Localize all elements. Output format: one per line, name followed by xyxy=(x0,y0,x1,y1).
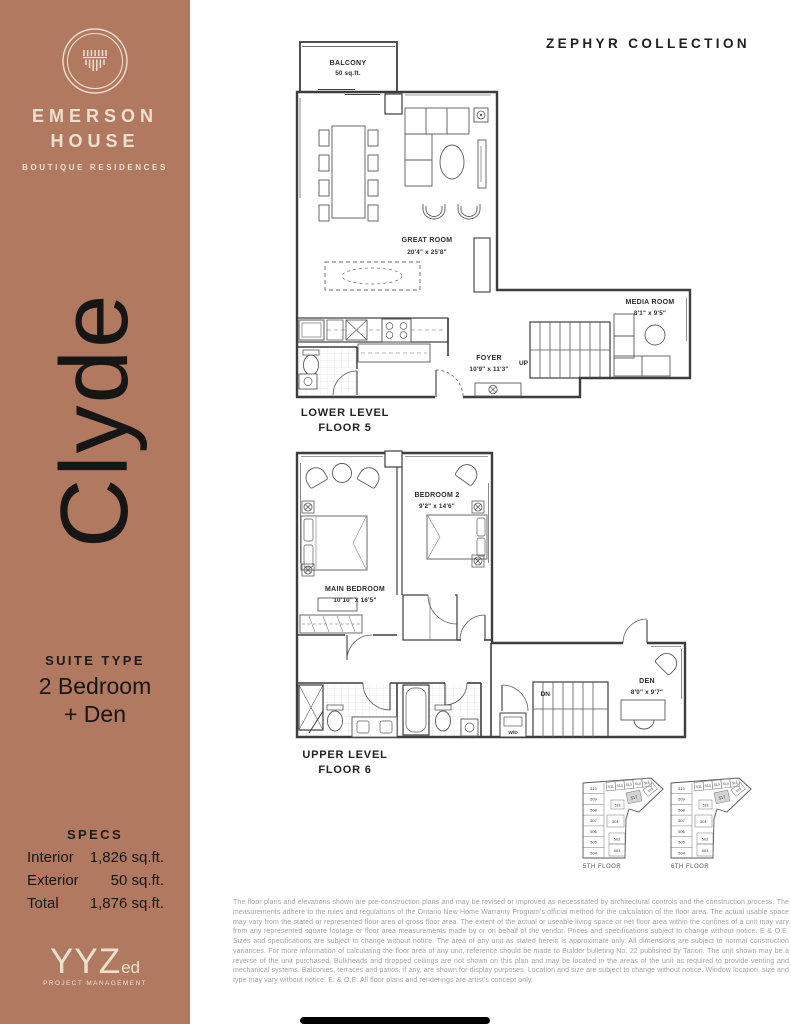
powder-room xyxy=(297,347,357,396)
shower xyxy=(299,685,323,733)
main-bedroom-door xyxy=(297,635,397,660)
unit-cell: 507 xyxy=(678,818,685,823)
unit-cell: 511 xyxy=(608,785,614,790)
unit-cell: 511 xyxy=(696,785,702,790)
legal-disclaimer: The floor plans and elevations shown are… xyxy=(233,898,789,986)
media-room-label: MEDIA ROOM xyxy=(625,299,674,306)
unit-cell: 501 xyxy=(700,819,707,824)
light-fixture-icon xyxy=(489,385,497,393)
spec-value: 50 sq.ft. xyxy=(111,872,164,889)
key-plan-6th-floor: 510 509 508 507 506 505 504 511 512 513 … xyxy=(669,776,755,862)
unit-cell: 518 xyxy=(703,803,709,807)
pantry-cabinet xyxy=(474,238,490,292)
lower-plan-caption: LOWER LEVEL FLOOR 5 xyxy=(290,406,400,435)
toilet xyxy=(327,705,343,731)
stairs-up: UP xyxy=(519,322,610,378)
upper-caption-line2: FLOOR 6 xyxy=(290,763,400,778)
unit-cell: 514 xyxy=(635,782,641,787)
specs-heading: SPECS xyxy=(0,827,190,842)
foyer-label: FOYER xyxy=(476,355,502,362)
unit-cell: 506 xyxy=(590,829,597,834)
unit-cell: 501 xyxy=(612,819,619,824)
unit-cell: 503 xyxy=(614,848,621,853)
unit-cell: 506 xyxy=(678,829,685,834)
kitchen-island xyxy=(325,262,420,290)
page-footer-bar xyxy=(300,1017,490,1024)
coffee-table xyxy=(440,145,464,179)
unit-cell: 513 xyxy=(714,783,720,788)
lower-level-floor-plan: BALCONY 50 sq.ft. xyxy=(285,38,695,408)
spec-value: 1,876 sq.ft. xyxy=(90,895,164,912)
bed2 xyxy=(427,515,487,559)
column xyxy=(385,94,402,114)
spec-row-interior: Interior 1,826 sq.ft. xyxy=(27,849,164,866)
unit-cell: 503 xyxy=(702,848,709,853)
brand-name-line1: EMERSON xyxy=(0,106,190,127)
upper-level-floor-plan: BEDROOM 2 9'2" x 14'6" MAIN BEDROOM 10'1… xyxy=(285,443,695,753)
bedroom-divider-wall xyxy=(397,467,402,595)
unit-cell: 518 xyxy=(615,803,621,807)
spec-label: Total xyxy=(27,895,59,912)
den-desk xyxy=(621,700,665,729)
unit-cell: 514 xyxy=(723,782,729,787)
foyer-size-label: 10'9" x 11'3" xyxy=(469,366,508,373)
suite-type-line2: + Den xyxy=(0,700,190,728)
den-chair xyxy=(655,649,681,675)
dining-table xyxy=(319,126,378,221)
column xyxy=(385,451,402,467)
unit-cell: 508 xyxy=(590,807,597,812)
balcony: BALCONY 50 sq.ft. xyxy=(300,42,397,92)
spec-value: 1,826 sq.ft. xyxy=(90,849,164,866)
media-room-size-label: 8'1" x 9'5" xyxy=(634,310,666,317)
yyzed-logo-main: YYZ xyxy=(50,942,121,981)
suite-type-line1: 2 Bedroom xyxy=(0,672,190,700)
unit-cell: 510 xyxy=(590,786,597,791)
stairs-up-label: UP xyxy=(519,360,529,367)
stove xyxy=(382,319,411,342)
unit-cell: 515 xyxy=(732,781,738,786)
bedroom2-door xyxy=(457,615,492,640)
suite-type-value: 2 Bedroom + Den xyxy=(0,672,190,728)
unit-cell: 512 xyxy=(705,784,711,789)
brochure-page: EMERSON HOUSE BOUTIQUE RESIDENCES Clyde … xyxy=(0,0,791,1024)
upper-caption-line1: UPPER LEVEL xyxy=(290,748,400,763)
key-plan-5th-floor: 510 509 508 507 506 505 504 511 512 513 … xyxy=(581,776,667,862)
unit-cell: 504 xyxy=(590,850,597,855)
unit-cell: 504 xyxy=(678,850,685,855)
stairs-down: DN xyxy=(533,682,608,737)
stairs-down-label: DN xyxy=(541,691,551,698)
entry-door xyxy=(435,370,463,401)
unit-cell: 509 xyxy=(590,797,597,802)
den-label: DEN xyxy=(639,678,655,685)
media-sofa xyxy=(614,314,670,376)
yyzed-logo-suffix: ed xyxy=(121,958,140,977)
spec-row-exterior: Exterior 50 sq.ft. xyxy=(27,872,164,889)
media-table xyxy=(645,325,665,345)
brand-tagline: BOUTIQUE RESIDENCES xyxy=(0,163,190,172)
suite-name: Clyde xyxy=(8,258,182,582)
foyer-closet xyxy=(475,383,521,396)
den-size-label: 8'0" x 9'7" xyxy=(631,689,663,696)
unit-cell: 507 xyxy=(590,818,597,823)
light-fixture-icons xyxy=(302,501,484,576)
main-bed xyxy=(301,516,367,570)
balcony-size-label: 50 sq.ft. xyxy=(335,70,361,77)
sidebar: EMERSON HOUSE BOUTIQUE RESIDENCES Clyde … xyxy=(0,0,190,1024)
kitchen-sink xyxy=(346,320,367,340)
key-plan-5th-caption: 5TH FLOOR xyxy=(583,864,621,870)
bedroom2-closet xyxy=(403,593,457,640)
great-room-size-label: 20'4" x 25'8" xyxy=(407,249,447,256)
tv-console xyxy=(478,140,486,188)
unit-cell: 505 xyxy=(678,840,685,845)
lower-caption-line1: LOWER LEVEL xyxy=(290,406,400,421)
accent-chairs xyxy=(423,204,480,219)
bedroom2-size-label: 9'2" x 14'6" xyxy=(419,503,455,510)
unit-cell: 505 xyxy=(590,840,597,845)
unit-cell: 502 xyxy=(702,837,709,842)
spec-label: Interior xyxy=(27,849,74,866)
wardrobe xyxy=(300,615,362,633)
second-bath xyxy=(403,683,480,736)
hall-door xyxy=(502,685,528,711)
unit-cell: 515 xyxy=(644,781,650,786)
unit-cell: 512 xyxy=(617,784,623,789)
ceiling-fixture xyxy=(474,108,488,122)
bedroom2-label: BEDROOM 2 xyxy=(414,492,459,499)
sectional-sofa xyxy=(405,108,469,186)
brand-name-line2: HOUSE xyxy=(0,131,190,152)
washer-dryer-label: W/D xyxy=(508,730,518,736)
bath-sink xyxy=(299,374,317,389)
toilet xyxy=(303,350,319,375)
yyzed-logo: YYZed PROJECT MANAGEMENT xyxy=(0,942,190,987)
main-ensuite-bath xyxy=(298,683,397,737)
double-vanity xyxy=(352,717,397,737)
balcony-label: BALCONY xyxy=(330,60,367,67)
spec-label: Exterior xyxy=(27,872,79,889)
emerson-house-crest-icon xyxy=(0,26,190,101)
washer-dryer: W/D xyxy=(500,713,526,737)
toilet xyxy=(435,705,451,731)
bathtub xyxy=(403,685,429,735)
great-room-label: GREAT ROOM xyxy=(402,237,453,244)
unit-cell: 502 xyxy=(614,837,621,842)
upper-plan-caption: UPPER LEVEL FLOOR 6 xyxy=(290,748,400,777)
yyzed-logo-sub: PROJECT MANAGEMENT xyxy=(0,980,190,987)
wing-door xyxy=(623,619,647,646)
spec-row-total: Total 1,876 sq.ft. xyxy=(27,895,164,912)
main-bedroom-label: MAIN BEDROOM xyxy=(325,586,385,593)
unit-cell: 513 xyxy=(626,783,632,788)
lower-caption-line2: FLOOR 5 xyxy=(290,421,400,436)
key-plan-6th-caption: 6TH FLOOR xyxy=(671,864,709,870)
suite-type-heading: SUITE TYPE xyxy=(0,653,190,668)
bath-sink xyxy=(461,719,478,736)
unit-cell: 510 xyxy=(678,786,685,791)
unit-cell: 509 xyxy=(678,797,685,802)
unit-cell: 508 xyxy=(678,807,685,812)
